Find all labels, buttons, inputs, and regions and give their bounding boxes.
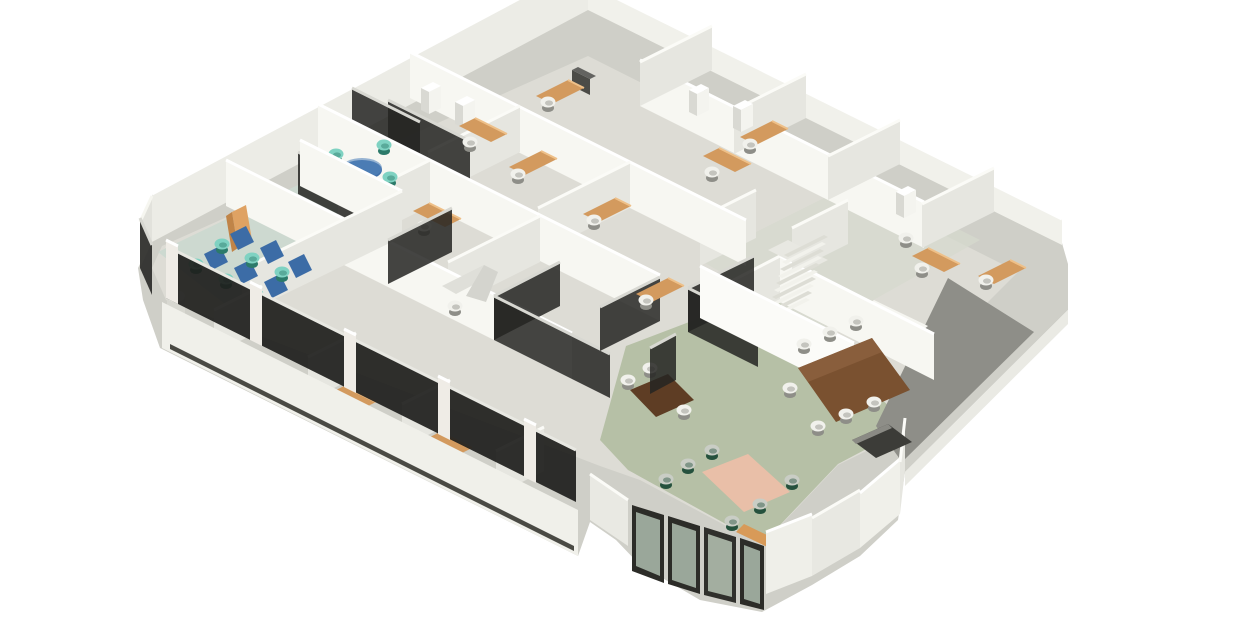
chair-break-5-seat xyxy=(757,502,765,507)
chair-conf-3-seat xyxy=(853,319,861,324)
cabinet-rightwing-side xyxy=(896,192,904,218)
chair-center-2-seat xyxy=(643,298,651,303)
chair-break-1-seat xyxy=(709,448,717,453)
chair-smalltable-3-seat xyxy=(681,408,689,413)
glass-post-2 xyxy=(250,282,262,346)
glass-post-4 xyxy=(438,376,450,440)
cabinet-top-1-side xyxy=(421,88,429,114)
chair-top-3-seat xyxy=(545,100,553,105)
chair-conf-4-seat xyxy=(815,424,823,429)
chair-training-4-seat xyxy=(219,242,227,247)
chair-conf-6-seat xyxy=(871,400,879,405)
chair-roundtable-4-seat xyxy=(387,175,395,180)
chair-roundtable-2-seat xyxy=(381,143,389,148)
door-glass-3 xyxy=(708,534,732,597)
chair-conf-1-seat xyxy=(801,342,809,347)
chair-break-4-seat xyxy=(789,478,797,483)
chair-rightwing-3-seat xyxy=(903,236,911,241)
chair-top-1-seat xyxy=(467,140,475,145)
chair-midleft-2-seat xyxy=(591,218,599,223)
chair-conf-5-seat xyxy=(843,412,851,417)
glass-post-5 xyxy=(524,419,536,483)
chair-training-5-seat xyxy=(249,256,257,261)
chair-conf-2-seat xyxy=(827,330,835,335)
floorplan-render-canvas xyxy=(0,0,1240,620)
chair-training-6-seat xyxy=(279,270,287,275)
glass-post-3 xyxy=(344,329,356,393)
chair-top-2-seat xyxy=(515,172,523,177)
door-glass-2 xyxy=(672,523,696,588)
glass-post-1 xyxy=(166,240,178,304)
cabinet-top-4-side xyxy=(733,106,741,132)
chair-break-2-seat xyxy=(685,462,693,467)
chair-top-5-seat xyxy=(747,142,755,147)
chair-top-4-seat xyxy=(709,170,717,175)
chair-break-3-seat xyxy=(663,477,671,482)
chair-center-1-seat xyxy=(452,304,460,309)
door-glass-1 xyxy=(636,512,660,576)
cabinet-top-2-side xyxy=(455,102,463,128)
chair-rightwing-2-seat xyxy=(983,278,991,283)
chair-smalltable-1-seat xyxy=(625,378,633,383)
door-glass-4 xyxy=(744,545,760,604)
cabinet-top-3-side xyxy=(689,90,697,116)
chair-break-6-seat xyxy=(729,519,737,524)
isometric-office-floorplan xyxy=(0,0,1240,620)
chair-conf-7-seat xyxy=(787,386,795,391)
chair-rightwing-1-seat xyxy=(919,266,927,271)
